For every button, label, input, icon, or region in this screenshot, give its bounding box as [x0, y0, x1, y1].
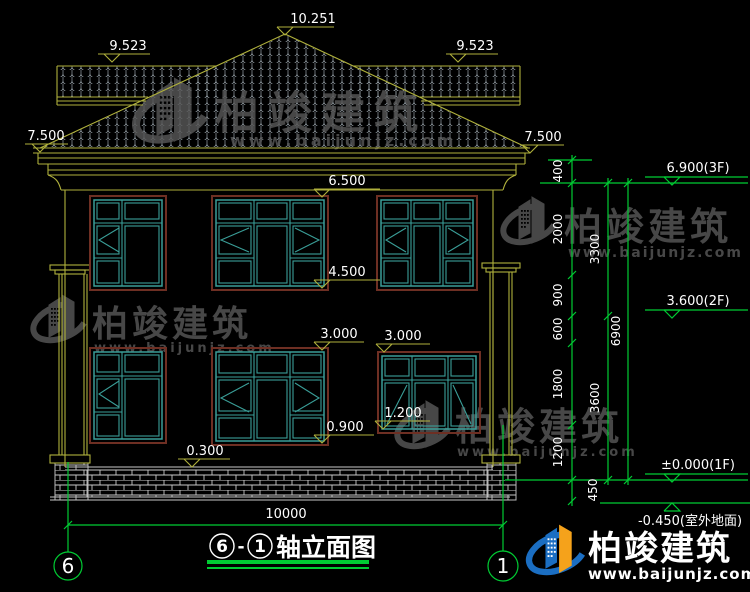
watermark-top: 柏竣建筑 www.baijunjz.com [129, 79, 458, 150]
axis-bubble-6: 6 [62, 554, 75, 578]
dim-3300: 3300 [588, 234, 602, 265]
level-1f-label: ±0.000(1F) [661, 458, 735, 473]
watermark-brand-text: 柏竣建筑 [92, 304, 252, 345]
elev-label-eave-right: 7.500 [524, 130, 561, 145]
elev-label-6500: 6.500 [328, 174, 365, 189]
elev-label-3000-b: 3.000 [384, 329, 421, 344]
title-bubble-right: 1 [254, 537, 266, 557]
dim-6900: 6900 [609, 316, 623, 347]
dim-900: 900 [551, 284, 565, 307]
dim-3600: 3600 [588, 383, 602, 414]
dim-450: 450 [586, 479, 600, 502]
title-text: 轴立面图 [276, 533, 376, 562]
elev-label-eave-left: 7.500 [27, 129, 64, 144]
dim-1800: 1800 [551, 369, 565, 400]
watermark-site-text: www.baijunjz.com [457, 445, 638, 460]
elev-label-1200: 1.200 [384, 406, 421, 421]
elev-label-wing-right: 9.523 [456, 39, 493, 54]
elev-label-3000-a: 3.000 [320, 327, 357, 342]
dim-1200: 1200 [551, 437, 565, 468]
axis-bubble-1: 1 [497, 554, 510, 578]
dim-600: 600 [551, 318, 565, 341]
watermark-site-text: www.baijunjz.com [230, 131, 457, 150]
elev-label-0900: 0.900 [326, 420, 363, 435]
elev-label-0300: 0.300 [186, 444, 223, 459]
title-dash: - [237, 537, 244, 557]
elevation-drawing-canvas: 柏竣建筑 www.baijunjz.com 柏竣建筑 www.baijunjz.… [0, 0, 750, 592]
level-3f-label: 6.900(3F) [666, 161, 729, 176]
elev-label-4500: 4.500 [328, 265, 365, 280]
footer-site-text: www.baijunjz.com [588, 565, 750, 583]
elev-label-wing-left: 9.523 [109, 39, 146, 54]
title-underline-thick [207, 560, 369, 564]
elev-label-ridge: 10.251 [290, 12, 336, 27]
overall-width-dim: 10000 [265, 507, 306, 522]
level-2f-label: 3.600(2F) [666, 294, 729, 309]
footer-brand-text: 柏竣建筑 [588, 529, 732, 569]
dim-400: 400 [551, 160, 565, 183]
title-underline-thin [207, 567, 369, 569]
level-ground-label: -0.450(室外地面) [638, 513, 742, 529]
title-bubble-left: 6 [216, 537, 228, 557]
dim-2000: 2000 [551, 214, 565, 245]
